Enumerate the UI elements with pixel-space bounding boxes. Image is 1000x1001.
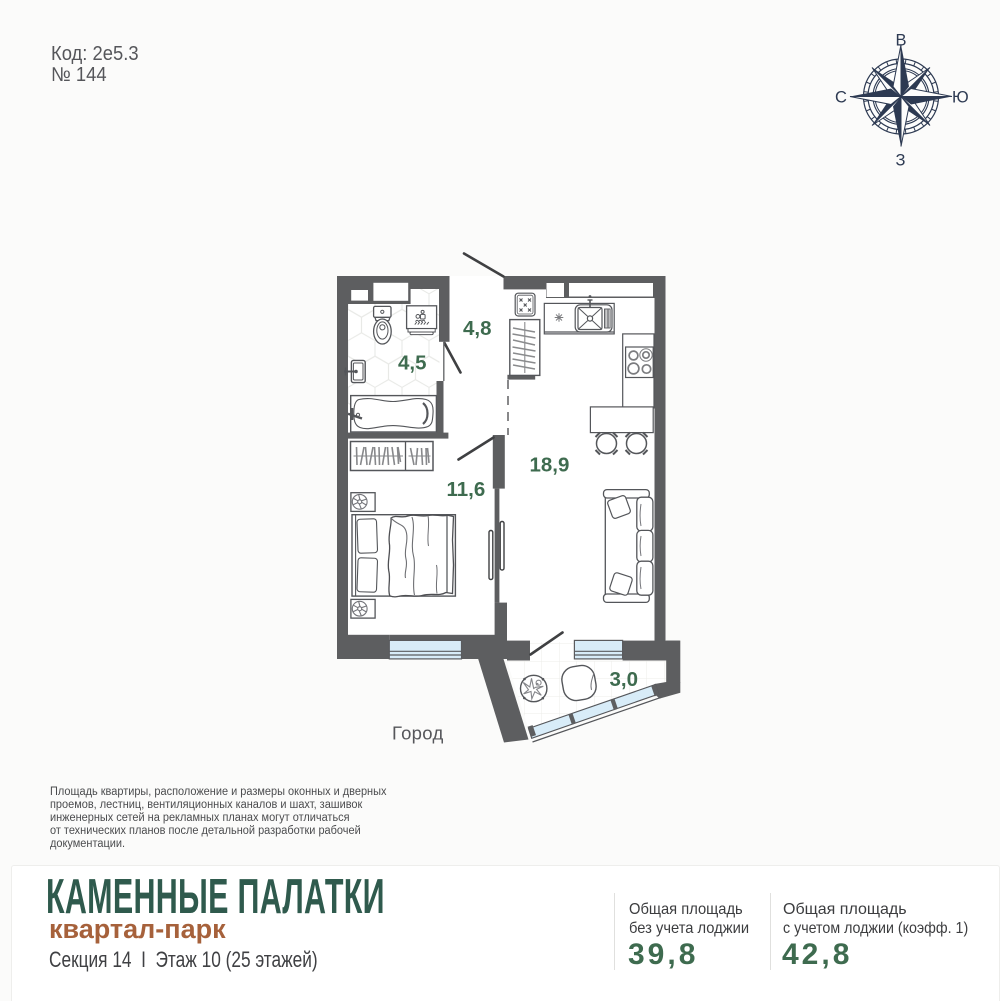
svg-text:Город: Город bbox=[392, 723, 444, 744]
svg-text:З: З bbox=[896, 152, 906, 170]
svg-text:11,6: 11,6 bbox=[447, 478, 486, 501]
svg-text:4,5: 4,5 bbox=[398, 352, 427, 375]
svg-text:3,0: 3,0 bbox=[610, 668, 639, 691]
svg-text:18,9: 18,9 bbox=[530, 454, 570, 477]
svg-text:В: В bbox=[896, 32, 907, 50]
svg-text:Ю: Ю bbox=[952, 89, 969, 107]
svg-text:4,8: 4,8 bbox=[463, 317, 492, 340]
svg-text:С: С bbox=[835, 89, 847, 107]
